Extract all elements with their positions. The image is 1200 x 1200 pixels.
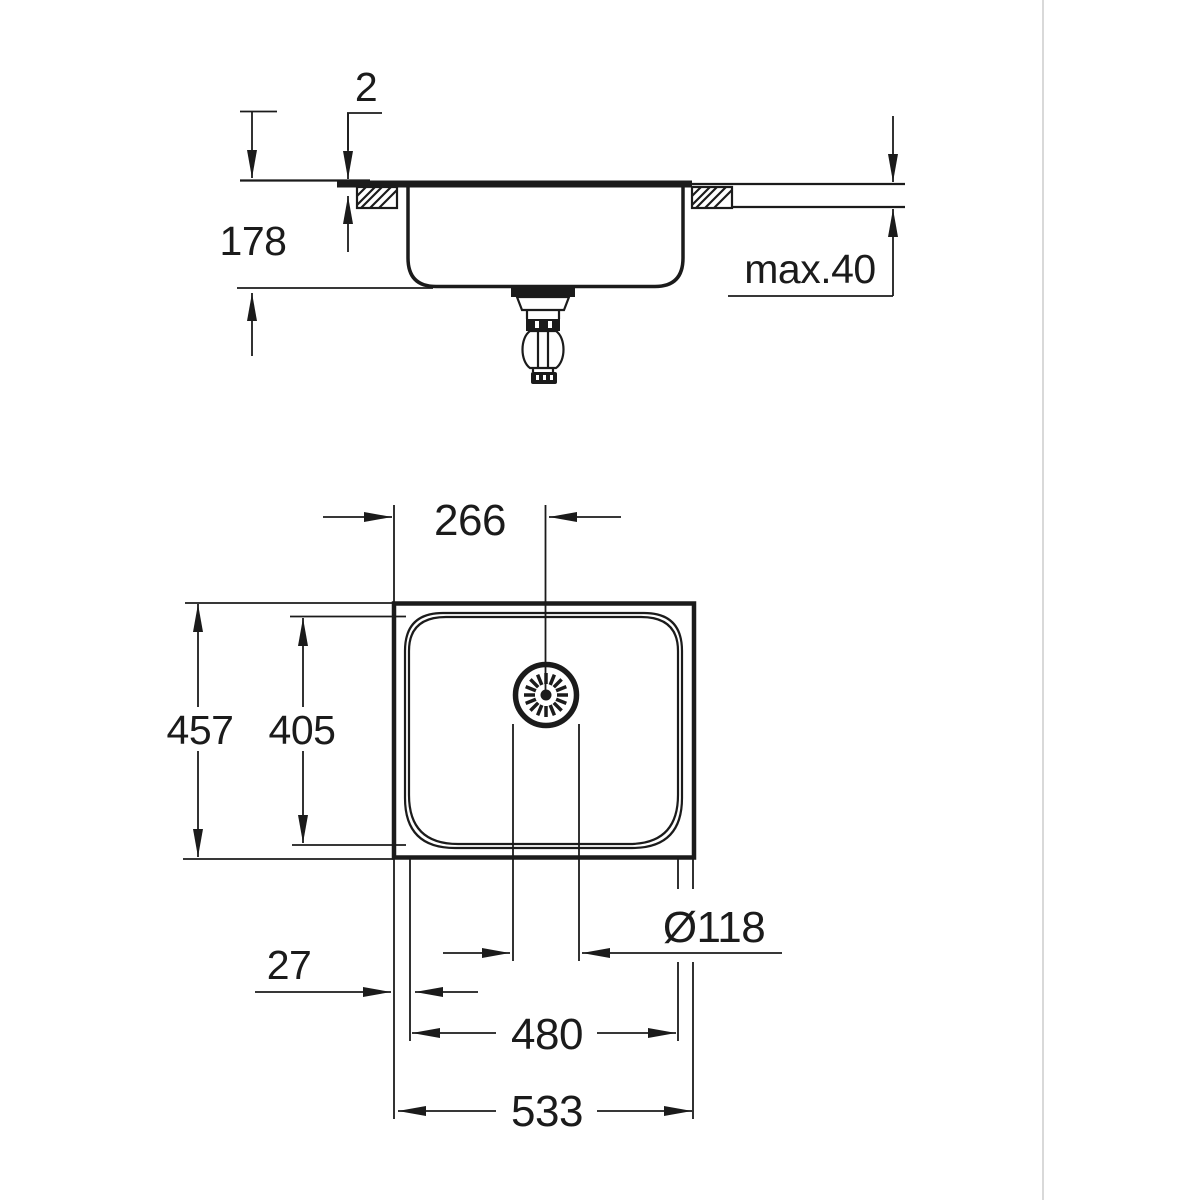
dim-label-edge-offset: 27: [267, 942, 312, 988]
dim-label-drain-offset: 266: [434, 496, 506, 545]
bowl-plan-outline: [405, 613, 682, 848]
countertop-hatch-left: [357, 187, 397, 208]
drain-trap: [511, 288, 575, 384]
section-view: 2 178 max.40: [220, 64, 905, 384]
countertop-hatch-right: [692, 187, 732, 208]
dim-label-bowl-depth: 178: [220, 218, 287, 264]
bowl-section-outline: [408, 187, 683, 287]
dim-edge-offset: 27: [255, 942, 478, 992]
dim-label-bowl-inner-width: 480: [511, 1010, 583, 1059]
dim-label-outer-width: 533: [511, 1087, 583, 1136]
dim-label-bowl-inner-depth: 405: [269, 707, 336, 753]
plan-view: 266 457 405: [167, 496, 782, 1136]
dim-drain-offset: 266: [323, 496, 621, 602]
dim-bowl-depth: 178: [220, 112, 287, 357]
dim-label-drain-diameter: Ø118: [663, 903, 765, 952]
dim-label-counter-thickness: max.40: [744, 246, 875, 292]
extension-lines: [394, 724, 693, 1119]
dim-outer-width: 533: [398, 1087, 692, 1136]
sink-dimension-drawing: 2 178 max.40: [0, 0, 1200, 1200]
dim-bowl-inner-width: 480: [412, 1010, 676, 1059]
dim-bowl-inner-depth: 405: [269, 617, 406, 846]
dim-label-rim-height: 2: [355, 64, 377, 110]
dim-rim-height: 2: [347, 64, 382, 252]
dim-drain-diameter: Ø118: [443, 903, 782, 953]
sink-outer-outline: [394, 604, 694, 858]
dim-label-outer-depth: 457: [167, 707, 234, 753]
